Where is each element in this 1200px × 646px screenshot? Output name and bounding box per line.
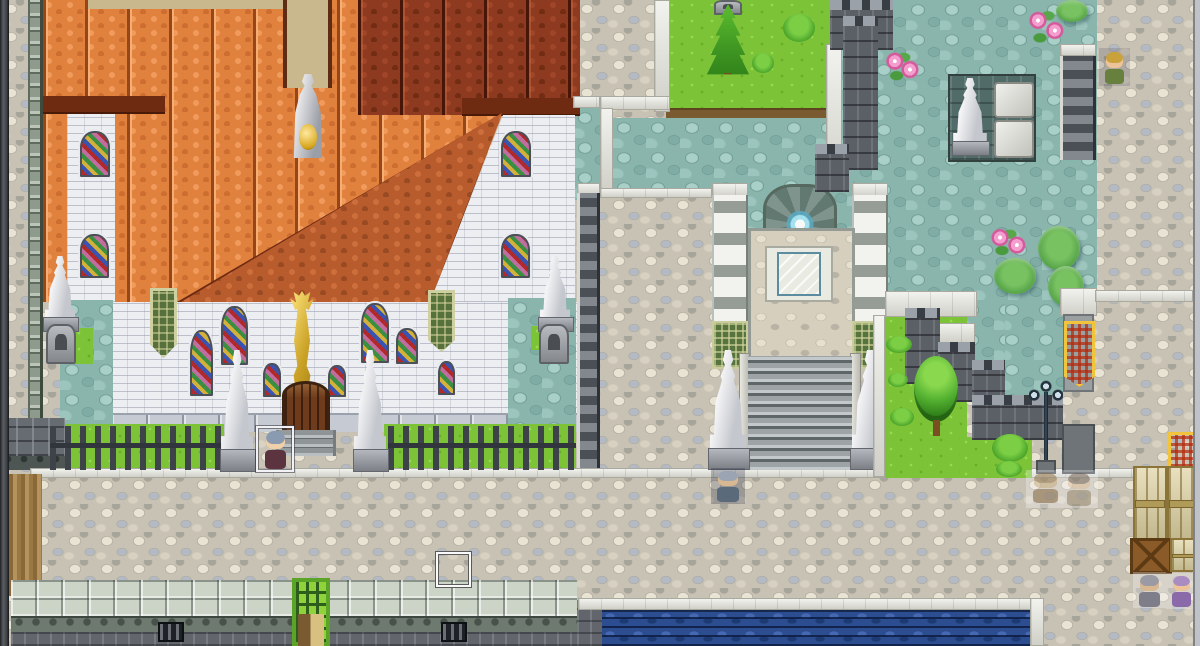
fence-left bbox=[50, 426, 224, 470]
npc-villager[interactable] bbox=[1101, 51, 1128, 85]
stained-glass-window bbox=[396, 328, 418, 364]
stained-glass-window bbox=[80, 131, 110, 177]
bush bbox=[996, 461, 1022, 477]
angel-statue-right bbox=[537, 256, 573, 332]
pillar-base bbox=[1062, 424, 1095, 474]
wall-barred-window bbox=[158, 622, 184, 642]
shrine-column-left bbox=[712, 195, 748, 329]
round-tree bbox=[912, 356, 960, 436]
stained-glass-window bbox=[263, 363, 281, 397]
scrollbar-right[interactable] bbox=[1193, 0, 1200, 646]
curb-zigzag-cap bbox=[938, 323, 975, 343]
stained-glass-window bbox=[80, 234, 109, 278]
lily-pad bbox=[1038, 226, 1080, 270]
lily-pad bbox=[1056, 0, 1088, 22]
memorial-slab bbox=[994, 82, 1034, 118]
gargoyle-statue bbox=[288, 74, 328, 158]
shrine-column-right bbox=[852, 195, 888, 329]
gravestone-left bbox=[46, 324, 76, 364]
street-lamp bbox=[1028, 379, 1064, 473]
pool-water bbox=[602, 610, 1030, 646]
npc-purple-robe[interactable] bbox=[1168, 575, 1195, 608]
editor-tile-cursor[interactable] bbox=[436, 552, 471, 587]
lily-pad bbox=[994, 258, 1036, 294]
window-chrome-left bbox=[0, 0, 9, 646]
angel-statue-garden bbox=[950, 78, 990, 156]
npc-ghost-man[interactable] bbox=[1062, 472, 1096, 507]
angel-statue-stairs-left bbox=[706, 350, 750, 470]
crate-brown bbox=[1130, 538, 1172, 574]
bush bbox=[890, 408, 914, 426]
stained-glass-window bbox=[190, 330, 213, 396]
banner-green-right bbox=[428, 290, 455, 352]
bush bbox=[752, 53, 774, 73]
curb-canal-west bbox=[600, 108, 613, 192]
church-side-wall bbox=[577, 193, 600, 468]
bush bbox=[886, 336, 912, 353]
bush bbox=[783, 14, 815, 42]
grand-stairs bbox=[748, 356, 852, 470]
curb-canal-south bbox=[600, 188, 712, 198]
water-lilies bbox=[884, 46, 920, 84]
pool-curb-top bbox=[578, 598, 1036, 610]
roof-eave-left bbox=[38, 96, 165, 114]
stained-glass-window bbox=[328, 365, 346, 397]
crate-light bbox=[1133, 466, 1167, 540]
banner-green-left bbox=[150, 288, 177, 358]
curb-road-right bbox=[1095, 290, 1193, 302]
angel-statue-door-right bbox=[351, 350, 389, 472]
npc-player-nun[interactable] bbox=[261, 429, 290, 470]
stained-glass-window bbox=[501, 131, 531, 177]
bush bbox=[888, 373, 908, 387]
alcove-grass-left bbox=[73, 328, 93, 364]
crystal-pool[interactable] bbox=[777, 252, 821, 296]
ladder-wall-garden bbox=[1060, 56, 1096, 160]
stained-glass-window bbox=[501, 234, 530, 278]
npc-knight[interactable] bbox=[713, 470, 743, 503]
water-lilies bbox=[988, 224, 1028, 258]
npc-ghost-animal[interactable] bbox=[1028, 472, 1063, 504]
dirt-track bbox=[9, 474, 42, 596]
roof-eave-right bbox=[462, 98, 580, 116]
soil-edge bbox=[666, 108, 830, 118]
wall-column-left bbox=[28, 0, 43, 422]
angel-statue-door-left bbox=[218, 350, 256, 472]
pool-curb-right bbox=[1030, 598, 1044, 646]
game-map[interactable] bbox=[0, 0, 1200, 646]
bush bbox=[992, 434, 1028, 462]
npc-hooded[interactable] bbox=[1135, 574, 1164, 608]
battlement-corner-garden bbox=[815, 144, 849, 192]
stained-glass-window bbox=[438, 361, 455, 395]
fence-right bbox=[388, 426, 576, 470]
wall-barred-window bbox=[441, 622, 467, 642]
curb-grass-west bbox=[873, 315, 885, 477]
banner-orange-pillar bbox=[1064, 321, 1095, 387]
gravestone-right bbox=[539, 324, 569, 364]
ground-tan-strip bbox=[88, 0, 285, 10]
gate-passage[interactable] bbox=[298, 614, 324, 646]
angel-statue-left bbox=[42, 256, 78, 332]
curb-church-ne bbox=[573, 96, 600, 108]
memorial-slab bbox=[994, 120, 1034, 158]
pillar-cap bbox=[1060, 288, 1097, 316]
